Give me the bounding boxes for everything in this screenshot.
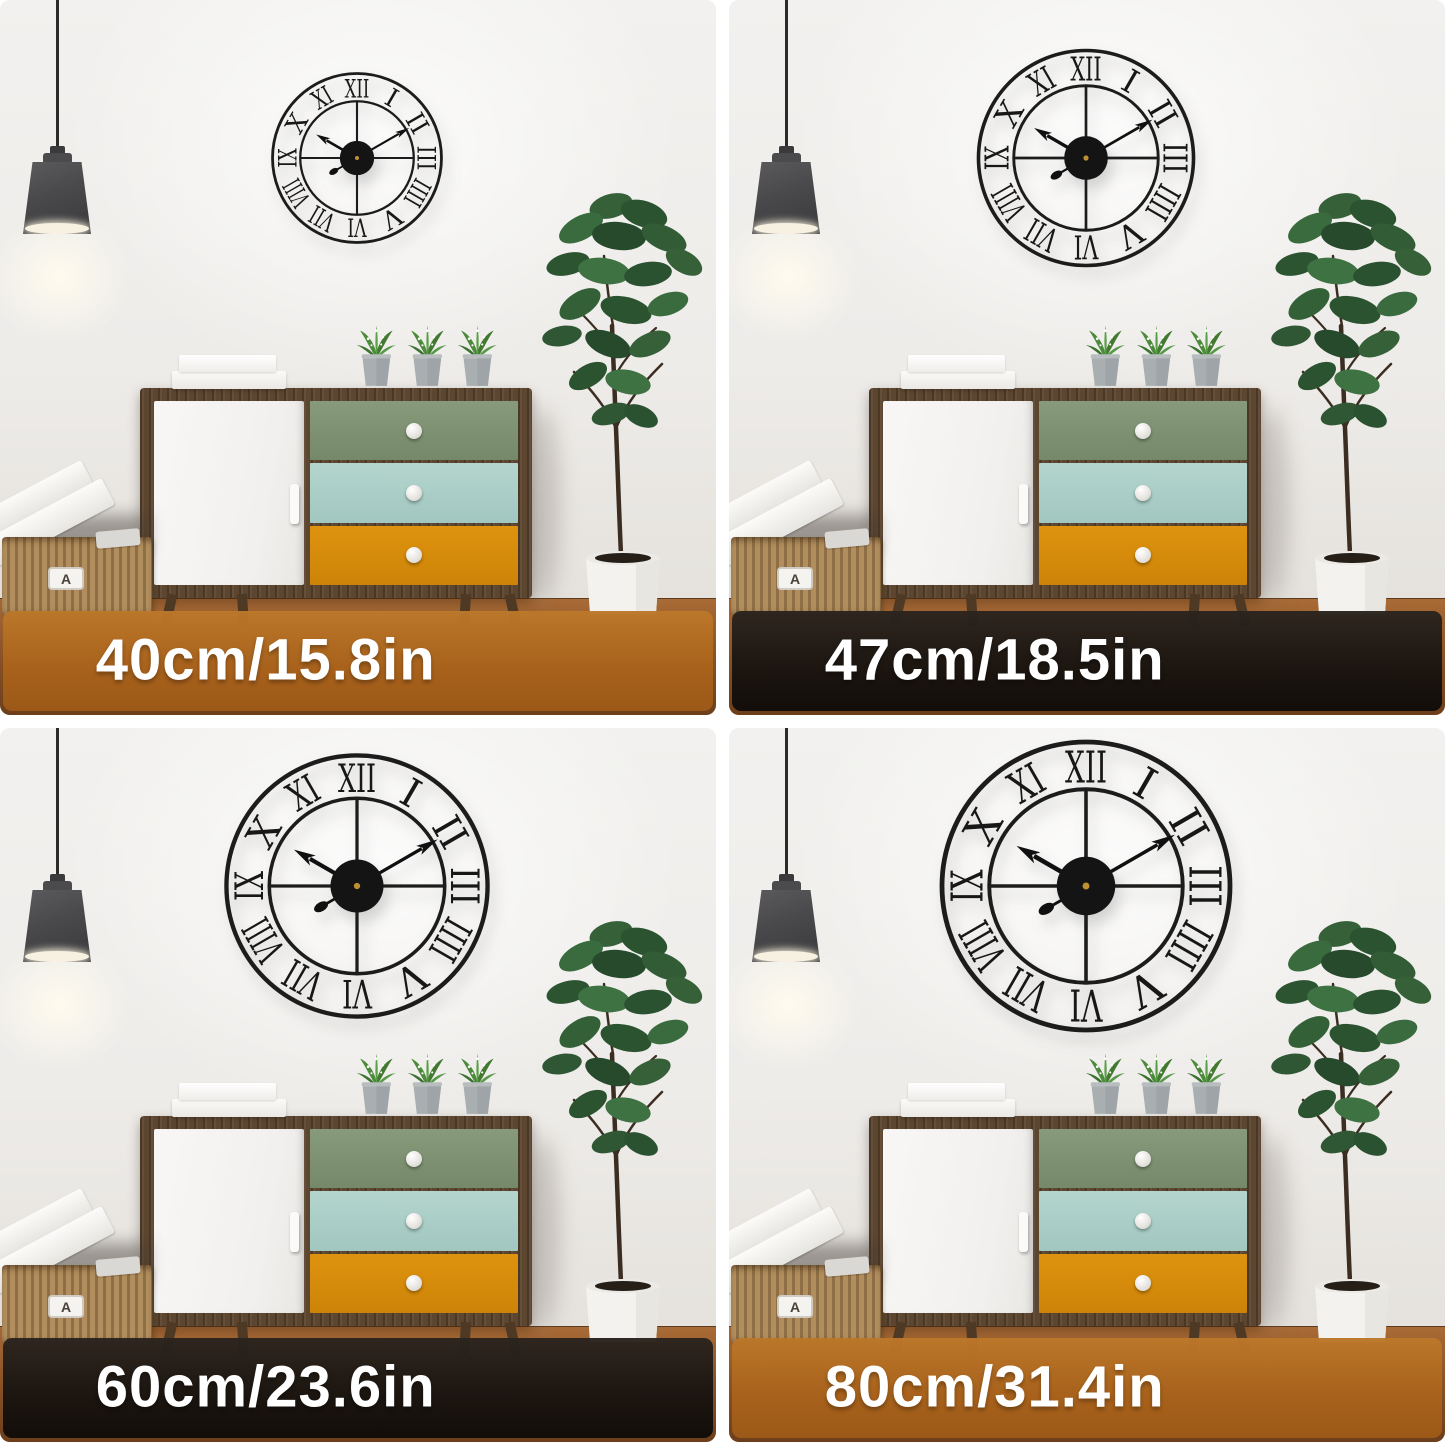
svg-text:IIII: IIII: [419, 910, 480, 970]
storage-basket: A: [731, 475, 883, 615]
storage-basket: A: [2, 475, 154, 615]
book-stack: [901, 352, 1019, 390]
potted-plants: [352, 322, 502, 388]
book: [172, 371, 286, 389]
svg-text:IX: IX: [273, 148, 303, 168]
sideboard-door-handle: [1019, 1212, 1028, 1252]
potted-plant-svg: [403, 322, 452, 388]
book: [908, 355, 1005, 372]
svg-text:III: III: [411, 146, 441, 171]
potted-plant-svg: [453, 1050, 502, 1116]
sideboard: [140, 388, 532, 598]
book: [179, 355, 276, 372]
basket-label-blank: [824, 1256, 869, 1277]
svg-text:IX: IX: [227, 871, 273, 901]
svg-text:VII: VII: [1019, 210, 1066, 259]
drawer-knob: [1135, 1151, 1151, 1167]
sideboard-drawers: [310, 401, 518, 585]
pendant-lamp: [23, 162, 91, 234]
basket-box: A: [731, 1265, 881, 1343]
basket-box: A: [2, 1265, 152, 1343]
basket-label-blank: [95, 528, 140, 549]
basket-label-text: A: [61, 572, 71, 586]
svg-text:XII: XII: [345, 74, 370, 104]
svg-text:IX: IX: [944, 869, 994, 902]
potted-plant-svg: [352, 1050, 401, 1116]
wall-clock: XIIIIIIIIIIIIVVIVIIVIIIIXXXI: [221, 750, 493, 1022]
book: [179, 1083, 276, 1100]
drawer-knob: [406, 1151, 422, 1167]
svg-text:III: III: [1179, 865, 1229, 907]
panel-size-47cm: XIIIIIIIIIIIIVVIVIIVIIIIXXXI: [729, 0, 1445, 715]
potted-plant: [1081, 1050, 1130, 1116]
size-label: 40cm/15.8in: [3, 631, 528, 689]
size-label: 60cm/23.6in: [3, 1358, 528, 1416]
book-stack: [901, 1080, 1019, 1118]
sideboard: [869, 1116, 1261, 1326]
svg-text:VI: VI: [347, 212, 367, 242]
svg-text:VIII: VIII: [951, 912, 1018, 978]
product-size-comparison-grid: XIIIIIIIIIIIIVVIVIIVIIIIXXXI: [0, 0, 1445, 1442]
panel-size-80cm: XIIIIIIIIIIIIVVIVIIVIIIIXXXI: [729, 728, 1445, 1442]
drawer-knob: [406, 1275, 422, 1291]
drawer-knob: [406, 1213, 422, 1229]
basket-box: A: [731, 537, 881, 615]
drawer-orange: [1039, 526, 1247, 585]
svg-text:VIII: VIII: [278, 173, 318, 212]
svg-text:VIII: VIII: [984, 178, 1035, 228]
drawer-knob: [406, 423, 422, 439]
sideboard-door-handle: [290, 1212, 299, 1252]
drawer-knob: [1135, 423, 1151, 439]
size-banner: 47cm/18.5in: [732, 611, 1442, 711]
sideboard-door: [883, 401, 1033, 585]
potted-plant: [403, 1050, 452, 1116]
svg-text:IIII: IIII: [1154, 912, 1221, 977]
lamp-cord: [785, 0, 788, 160]
drawer-blue: [1039, 463, 1247, 522]
drawer-green: [1039, 401, 1247, 460]
svg-text:III: III: [441, 867, 487, 905]
drawer-knob: [406, 547, 422, 563]
svg-text:IIII: IIII: [397, 173, 437, 212]
potted-plant-svg: [1182, 1050, 1231, 1116]
svg-text:XII: XII: [338, 756, 376, 802]
potted-plant-svg: [352, 322, 401, 388]
potted-plant: [352, 1050, 401, 1116]
pendant-lamp: [23, 890, 91, 962]
size-label: 80cm/31.4in: [732, 1358, 1257, 1416]
book-stack: [172, 1080, 290, 1118]
lamp-cord: [56, 0, 59, 160]
drawer-blue: [310, 463, 518, 522]
potted-plant-svg: [403, 1050, 452, 1116]
lamp-cord: [56, 728, 59, 888]
basket-label: A: [777, 1295, 813, 1318]
svg-text:VIII: VIII: [234, 910, 295, 970]
potted-plant: [1132, 1050, 1181, 1116]
svg-text:VI: VI: [1070, 979, 1104, 1029]
svg-text:VII: VII: [304, 198, 341, 237]
sideboard-drawers: [310, 1129, 518, 1313]
drawer-knob: [1135, 1213, 1151, 1229]
size-banner: 80cm/31.4in: [732, 1338, 1442, 1438]
potted-plants: [1081, 322, 1231, 388]
sideboard-door: [883, 1129, 1033, 1313]
drawer-knob: [1135, 1275, 1151, 1291]
potted-plant-svg: [1132, 322, 1181, 388]
basket-label-text: A: [790, 1300, 800, 1314]
lamp-cord: [785, 728, 788, 888]
drawer-blue: [1039, 1191, 1247, 1250]
svg-text:XII: XII: [1070, 51, 1101, 89]
fig-tree-svg: [1245, 176, 1445, 616]
svg-text:VII: VII: [276, 949, 333, 1008]
basket-label: A: [48, 1295, 84, 1318]
drawer-green: [310, 401, 518, 460]
drawer-orange: [310, 526, 518, 585]
size-label: 47cm/18.5in: [732, 631, 1257, 689]
fiddle-leaf-fig-tree: [516, 176, 716, 616]
drawer-orange: [310, 1254, 518, 1313]
potted-plant: [1132, 322, 1181, 388]
storage-basket: A: [731, 1203, 883, 1343]
fiddle-leaf-fig-tree: [516, 904, 716, 1344]
wall-clock-svg: XIIIIIIIIIIIIVVIVIIVIIIIXXXI: [974, 46, 1198, 270]
potted-plants: [1081, 1050, 1231, 1116]
basket-label-text: A: [790, 572, 800, 586]
potted-plant: [453, 1050, 502, 1116]
book: [901, 1099, 1015, 1117]
potted-plant-svg: [453, 322, 502, 388]
fiddle-leaf-fig-tree: [1245, 904, 1445, 1344]
basket-label-text: A: [61, 1300, 71, 1314]
wall-clock-svg: XIIIIIIIIIIIIVVIVIIVIIIIXXXI: [269, 70, 445, 246]
wall-clock: XIIIIIIIIIIIIVVIVIIVIIIIXXXI: [974, 46, 1198, 270]
pendant-lamp: [752, 890, 820, 962]
potted-plant: [1182, 322, 1231, 388]
pendant-lamp: [752, 162, 820, 234]
svg-text:I: I: [379, 83, 403, 114]
potted-plant: [403, 322, 452, 388]
potted-plants: [352, 1050, 502, 1116]
potted-plant: [1081, 322, 1130, 388]
sideboard-drawers: [1039, 1129, 1247, 1313]
wall-clock: XIIIIIIIIIIIIVVIVIIVIIIIXXXI: [269, 70, 445, 246]
drawer-knob: [1135, 547, 1151, 563]
drawer-knob: [406, 485, 422, 501]
svg-text:I: I: [1125, 758, 1165, 810]
drawer-blue: [310, 1191, 518, 1250]
potted-plant-svg: [1081, 1050, 1130, 1116]
sideboard-drawers: [1039, 401, 1247, 585]
storage-basket: A: [2, 1203, 154, 1343]
drawer-green: [1039, 1129, 1247, 1188]
basket-label: A: [777, 567, 813, 590]
basket-label: A: [48, 567, 84, 590]
panel-size-60cm: XIIIIIIIIIIIIVVIVIIVIIIIXXXI: [0, 728, 716, 1442]
potted-plant: [1182, 1050, 1231, 1116]
basket-label-blank: [824, 528, 869, 549]
svg-text:XII: XII: [1065, 744, 1107, 794]
svg-text:I: I: [392, 770, 428, 818]
fig-tree-svg: [516, 904, 716, 1344]
drawer-knob: [1135, 485, 1151, 501]
basket-label-blank: [95, 1256, 140, 1277]
wall-clock-svg: XIIIIIIIIIIIIVVIVIIVIIIIXXXI: [936, 736, 1236, 1036]
drawer-green: [310, 1129, 518, 1188]
svg-text:IIII: IIII: [1137, 178, 1187, 227]
basket-box: A: [2, 537, 152, 615]
potted-plant: [453, 322, 502, 388]
potted-plant: [352, 322, 401, 388]
svg-text:VII: VII: [997, 956, 1059, 1021]
svg-text:I: I: [1115, 62, 1145, 101]
potted-plant-svg: [1132, 1050, 1181, 1116]
potted-plant-svg: [1182, 322, 1231, 388]
wall-clock: XIIIIIIIIIIIIVVIVIIVIIIIXXXI: [936, 736, 1236, 1036]
panel-size-40cm: XIIIIIIIIIIIIVVIVIIVIIIIXXXI: [0, 0, 716, 715]
book: [908, 1083, 1005, 1100]
sideboard-door: [154, 401, 304, 585]
svg-text:III: III: [1155, 142, 1193, 173]
sideboard: [869, 388, 1261, 598]
book: [901, 371, 1015, 389]
book-stack: [172, 352, 290, 390]
fig-tree-svg: [1245, 904, 1445, 1344]
svg-text:IX: IX: [979, 146, 1017, 171]
sideboard: [140, 1116, 532, 1326]
sideboard-door-handle: [1019, 484, 1028, 524]
potted-plant-svg: [1081, 322, 1130, 388]
size-banner: 40cm/15.8in: [3, 611, 713, 711]
sideboard-door-handle: [290, 484, 299, 524]
wall-clock-svg: XIIIIIIIIIIIIVVIVIIVIIIIXXXI: [221, 750, 493, 1022]
drawer-orange: [1039, 1254, 1247, 1313]
sideboard-door: [154, 1129, 304, 1313]
size-banner: 60cm/23.6in: [3, 1338, 713, 1438]
fiddle-leaf-fig-tree: [1245, 176, 1445, 616]
svg-text:VI: VI: [1074, 227, 1099, 265]
book: [172, 1099, 286, 1117]
svg-text:VI: VI: [342, 970, 373, 1016]
fig-tree-svg: [516, 176, 716, 616]
